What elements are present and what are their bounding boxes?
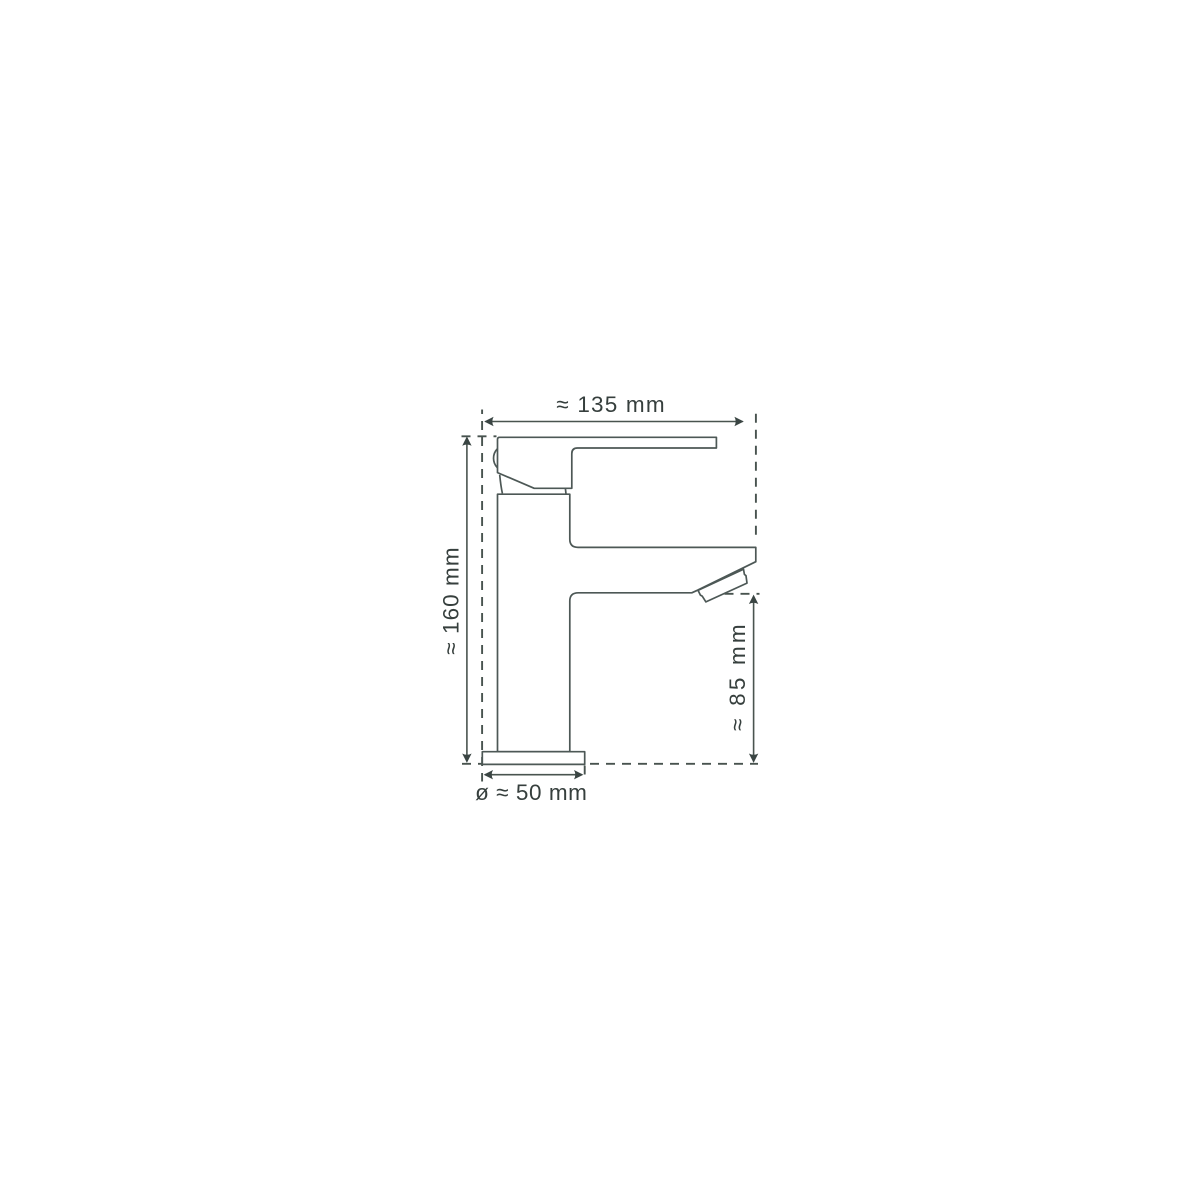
svg-text:≈ 160 mm: ≈ 160 mm [439,546,464,654]
svg-text:≈ 135 mm: ≈ 135 mm [556,392,665,417]
svg-text:≈ 85 mm: ≈ 85 mm [725,621,750,731]
svg-text:ø ≈ 50 mm: ø ≈ 50 mm [475,780,587,805]
